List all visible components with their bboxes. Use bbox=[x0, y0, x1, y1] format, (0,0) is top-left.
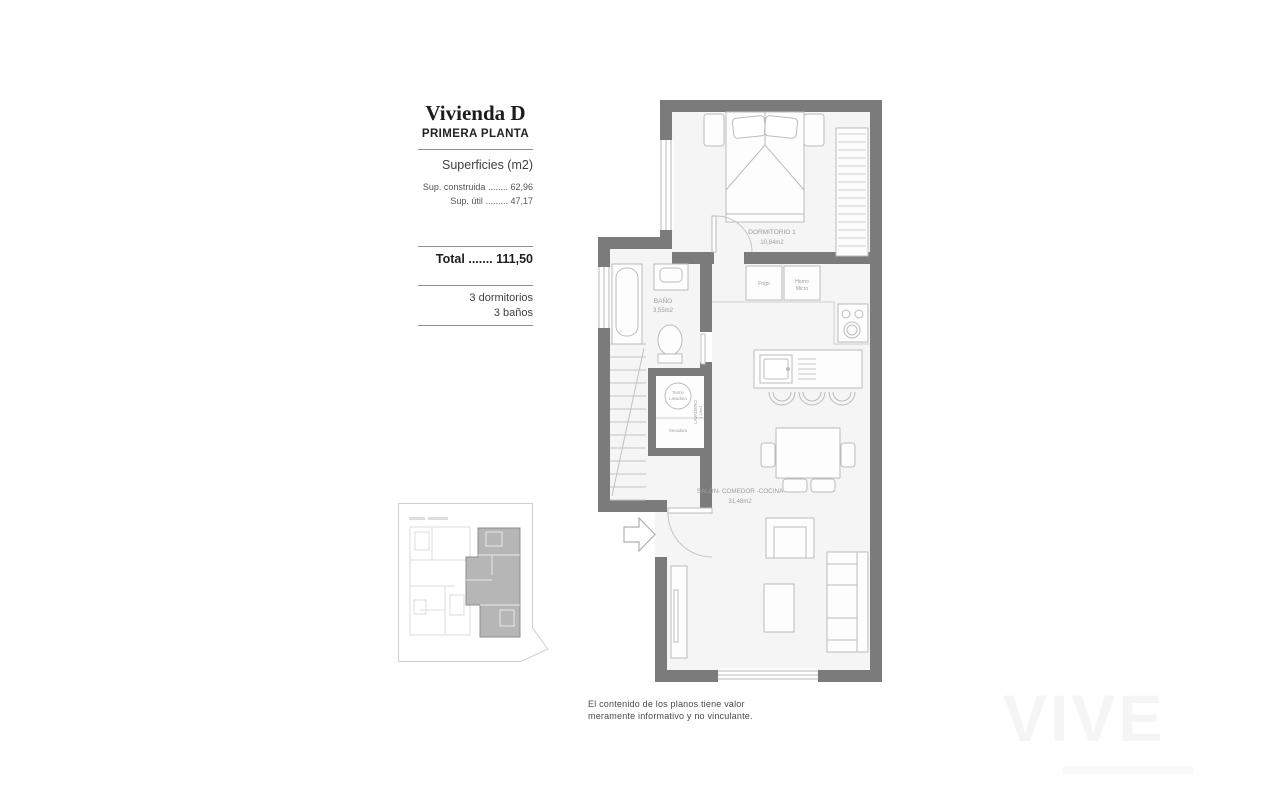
living-area-label: 31,48m2 bbox=[728, 499, 752, 505]
pillow bbox=[764, 115, 798, 138]
mini-location-plan bbox=[399, 504, 549, 662]
disclaimer-line2: meramente informativo y no vinculante. bbox=[588, 711, 808, 723]
disclaimer: El contenido de los planos tiene valor m… bbox=[588, 699, 808, 722]
living-name-label: SALÓN- COMEDOR -COCINA bbox=[697, 486, 784, 495]
oven-label-1: Horno bbox=[795, 279, 809, 285]
nightstand-right bbox=[804, 114, 824, 146]
dining-table bbox=[776, 428, 840, 478]
nightstand-left bbox=[704, 114, 724, 146]
mini-caption-bar bbox=[428, 517, 448, 520]
wardrobe bbox=[836, 128, 868, 256]
laundry-name-label: LAVADERO bbox=[693, 400, 698, 424]
laundry-closet: Termo Lavadora Secadora LAVADERO 1,15m2 bbox=[656, 376, 704, 448]
chair bbox=[811, 479, 835, 492]
chair bbox=[783, 479, 807, 492]
entry-door bbox=[668, 508, 712, 513]
cooktop bbox=[838, 304, 868, 342]
brand-watermark: VIVE bbox=[1003, 680, 1263, 756]
mini-caption-bar bbox=[409, 517, 425, 520]
tv-unit bbox=[671, 566, 687, 658]
armchair bbox=[766, 518, 814, 558]
washer-label-1: Termo bbox=[672, 390, 684, 395]
dryer-label: Secadora bbox=[669, 428, 688, 433]
bath-name-label: BAÑO bbox=[654, 296, 672, 305]
main-floorplan: Termo Lavadora Secadora LAVADERO 1,15m2 bbox=[596, 100, 882, 684]
laundry-area-label: 1,15m2 bbox=[699, 406, 703, 419]
fridge-label: Frigo bbox=[758, 281, 770, 287]
bedroom-door bbox=[712, 216, 716, 252]
pillow bbox=[732, 115, 766, 138]
brand-watermark-tagline bbox=[1063, 766, 1193, 774]
disclaimer-line1: El contenido de los planos tiene valor bbox=[588, 699, 808, 711]
toilet bbox=[658, 325, 682, 355]
bath-sliding-door bbox=[701, 334, 705, 364]
chair bbox=[761, 443, 775, 467]
oven-label-2: Micro bbox=[796, 286, 808, 292]
sofa bbox=[827, 552, 868, 652]
tv bbox=[674, 590, 678, 642]
chair bbox=[841, 443, 855, 467]
bedroom-area-label: 10,84m2 bbox=[760, 240, 784, 246]
entry-arrow-icon bbox=[624, 518, 655, 551]
washer-label-2: Lavadora bbox=[669, 396, 687, 401]
bedroom-name-label: DORMITORIO 1 bbox=[748, 229, 796, 236]
coffee-table bbox=[764, 584, 794, 632]
bath-area-label: 3,55m2 bbox=[653, 308, 674, 314]
